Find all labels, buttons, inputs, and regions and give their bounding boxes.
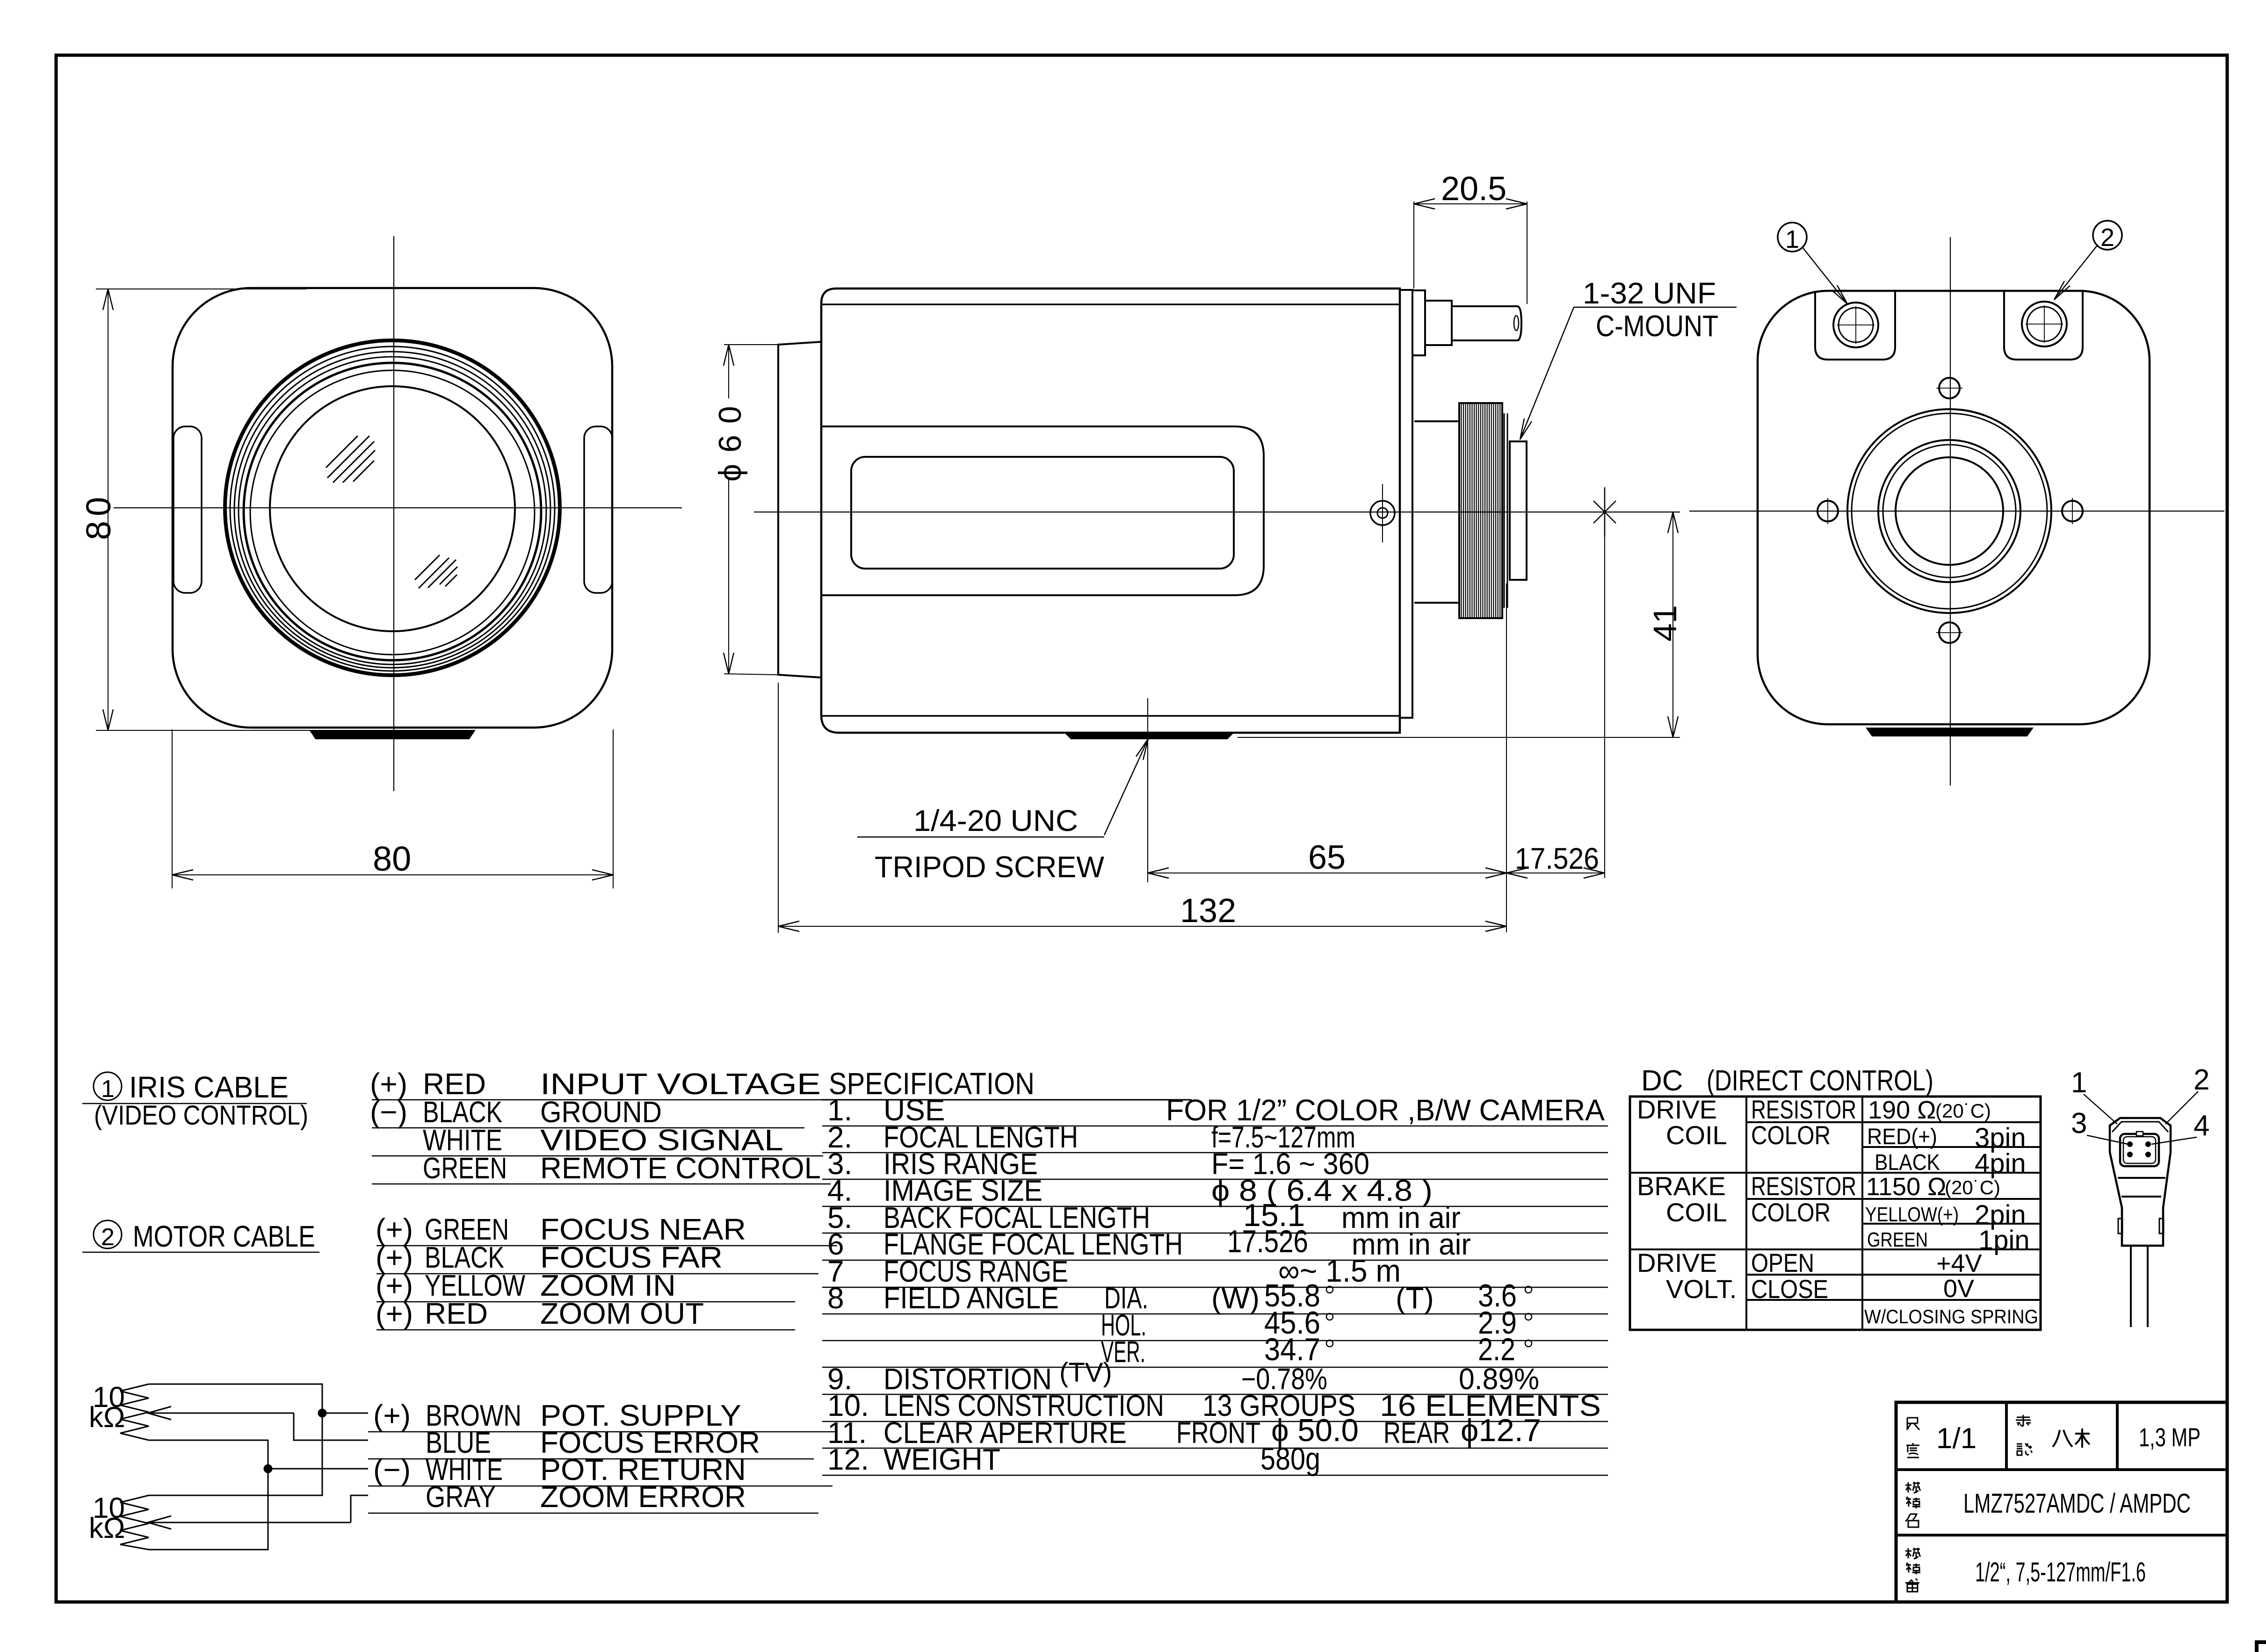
svg-text:GREEN: GREEN <box>1867 1228 1928 1251</box>
svg-text:REMOTE CONTROL: REMOTE CONTROL <box>540 1151 821 1185</box>
svg-text:COLOR: COLOR <box>1751 1198 1831 1227</box>
svg-text:80: 80 <box>373 839 411 878</box>
svg-text:(VIDEO CONTROL): (VIDEO CONTROL) <box>94 1100 308 1131</box>
svg-text:(TV): (TV) <box>1059 1357 1112 1388</box>
svg-text:(−): (−) <box>370 1095 407 1129</box>
svg-text:20.5: 20.5 <box>1441 170 1506 208</box>
svg-text:GRAY: GRAY <box>426 1480 496 1514</box>
svg-text:(+): (+) <box>373 1399 411 1432</box>
svg-text:OPEN: OPEN <box>1751 1248 1814 1277</box>
svg-text:ϕ12.7: ϕ12.7 <box>1461 1413 1541 1448</box>
svg-text:4pin: 4pin <box>1975 1148 2026 1179</box>
svg-text:COIL: COIL <box>1666 1120 1727 1150</box>
svg-text:DRIVE: DRIVE <box>1637 1248 1717 1277</box>
svg-text:LMZ7527AMDC / AMPDC: LMZ7527AMDC / AMPDC <box>1963 1488 2191 1519</box>
svg-text:1/1: 1/1 <box>1936 1422 1976 1455</box>
svg-text:DRIVE: DRIVE <box>1637 1095 1717 1124</box>
svg-text:2: 2 <box>101 1224 115 1251</box>
svg-text:0V: 0V <box>1943 1275 1974 1303</box>
svg-text:+4V: +4V <box>1936 1249 1982 1277</box>
svg-text:ZOOM ERROR: ZOOM ERROR <box>540 1480 746 1514</box>
svg-text:FIELD ANGLE: FIELD ANGLE <box>883 1281 1059 1315</box>
svg-text:132: 132 <box>1180 892 1236 930</box>
svg-text:1/2“, 7,5-127mm/F1.6: 1/2“, 7,5-127mm/F1.6 <box>1975 1557 2146 1587</box>
svg-text:GREEN: GREEN <box>423 1151 507 1185</box>
svg-text:(20˙C): (20˙C) <box>1945 1176 2000 1198</box>
svg-text:W/CLOSING SPRING: W/CLOSING SPRING <box>1864 1306 2038 1327</box>
svg-text:65: 65 <box>1308 839 1346 876</box>
svg-text:VOLT.: VOLT. <box>1666 1274 1737 1304</box>
svg-text:(DIRECT CONTROL): (DIRECT CONTROL) <box>1707 1065 1933 1097</box>
svg-text:REAR: REAR <box>1383 1416 1450 1450</box>
svg-text:C-MOUNT: C-MOUNT <box>1596 309 1718 343</box>
svg-text:WEIGHT: WEIGHT <box>883 1443 1000 1476</box>
svg-text:(+): (+) <box>376 1297 413 1330</box>
svg-text:1-32 UNF: 1-32 UNF <box>1583 276 1716 310</box>
svg-text:IRIS CABLE: IRIS CABLE <box>129 1070 289 1104</box>
svg-text:1,3 MP: 1,3 MP <box>2139 1422 2201 1452</box>
svg-text:BLACK: BLACK <box>1875 1150 1940 1175</box>
svg-text:41: 41 <box>1647 605 1683 642</box>
svg-text:12.: 12. <box>827 1443 869 1476</box>
svg-text:1pin: 1pin <box>1978 1225 2030 1255</box>
svg-text:MOTOR CABLE: MOTOR CABLE <box>133 1219 315 1253</box>
svg-text:(T): (T) <box>1396 1281 1434 1315</box>
svg-text:(−): (−) <box>373 1453 411 1486</box>
svg-text:(20˙C): (20˙C) <box>1935 1100 1991 1122</box>
svg-text:580g: 580g <box>1260 1441 1320 1477</box>
svg-text:ϕ60: ϕ60 <box>712 395 748 482</box>
svg-text:FRONT: FRONT <box>1176 1416 1260 1450</box>
svg-text:YELLOW(+): YELLOW(+) <box>1865 1203 1959 1226</box>
svg-text:1: 1 <box>101 1075 115 1103</box>
svg-text:8: 8 <box>827 1281 844 1315</box>
svg-text:190 Ω: 190 Ω <box>1868 1096 1936 1124</box>
svg-text:RESISTOR: RESISTOR <box>1751 1095 1856 1124</box>
svg-text:(W): (W) <box>1211 1281 1260 1315</box>
svg-text:80: 80 <box>79 492 118 540</box>
svg-text:kΩ: kΩ <box>89 1401 125 1434</box>
svg-text:3: 3 <box>2071 1107 2087 1140</box>
svg-text:COLOR: COLOR <box>1751 1120 1831 1150</box>
svg-text:COIL: COIL <box>1666 1198 1727 1227</box>
svg-text:RED(+): RED(+) <box>1867 1125 1937 1149</box>
svg-text:BRAKE: BRAKE <box>1637 1171 1726 1201</box>
svg-text:2: 2 <box>2100 224 2114 252</box>
svg-text:1150 Ω: 1150 Ω <box>1866 1173 1947 1201</box>
svg-text:CLOSE: CLOSE <box>1751 1274 1828 1304</box>
svg-text:17.526: 17.526 <box>1515 842 1599 875</box>
svg-text:1/4-20 UNC: 1/4-20 UNC <box>913 804 1078 837</box>
svg-text:kΩ: kΩ <box>89 1512 125 1544</box>
svg-text:DC: DC <box>1641 1065 1683 1097</box>
svg-text:ZOOM OUT: ZOOM OUT <box>540 1297 704 1330</box>
svg-text:RESISTOR: RESISTOR <box>1751 1171 1856 1201</box>
svg-text:1: 1 <box>2071 1067 2087 1099</box>
svg-text:2: 2 <box>2194 1064 2209 1096</box>
svg-text:TRIPOD SCREW: TRIPOD SCREW <box>875 850 1105 884</box>
svg-text:1: 1 <box>1785 225 1799 253</box>
svg-text:RED: RED <box>425 1297 488 1330</box>
